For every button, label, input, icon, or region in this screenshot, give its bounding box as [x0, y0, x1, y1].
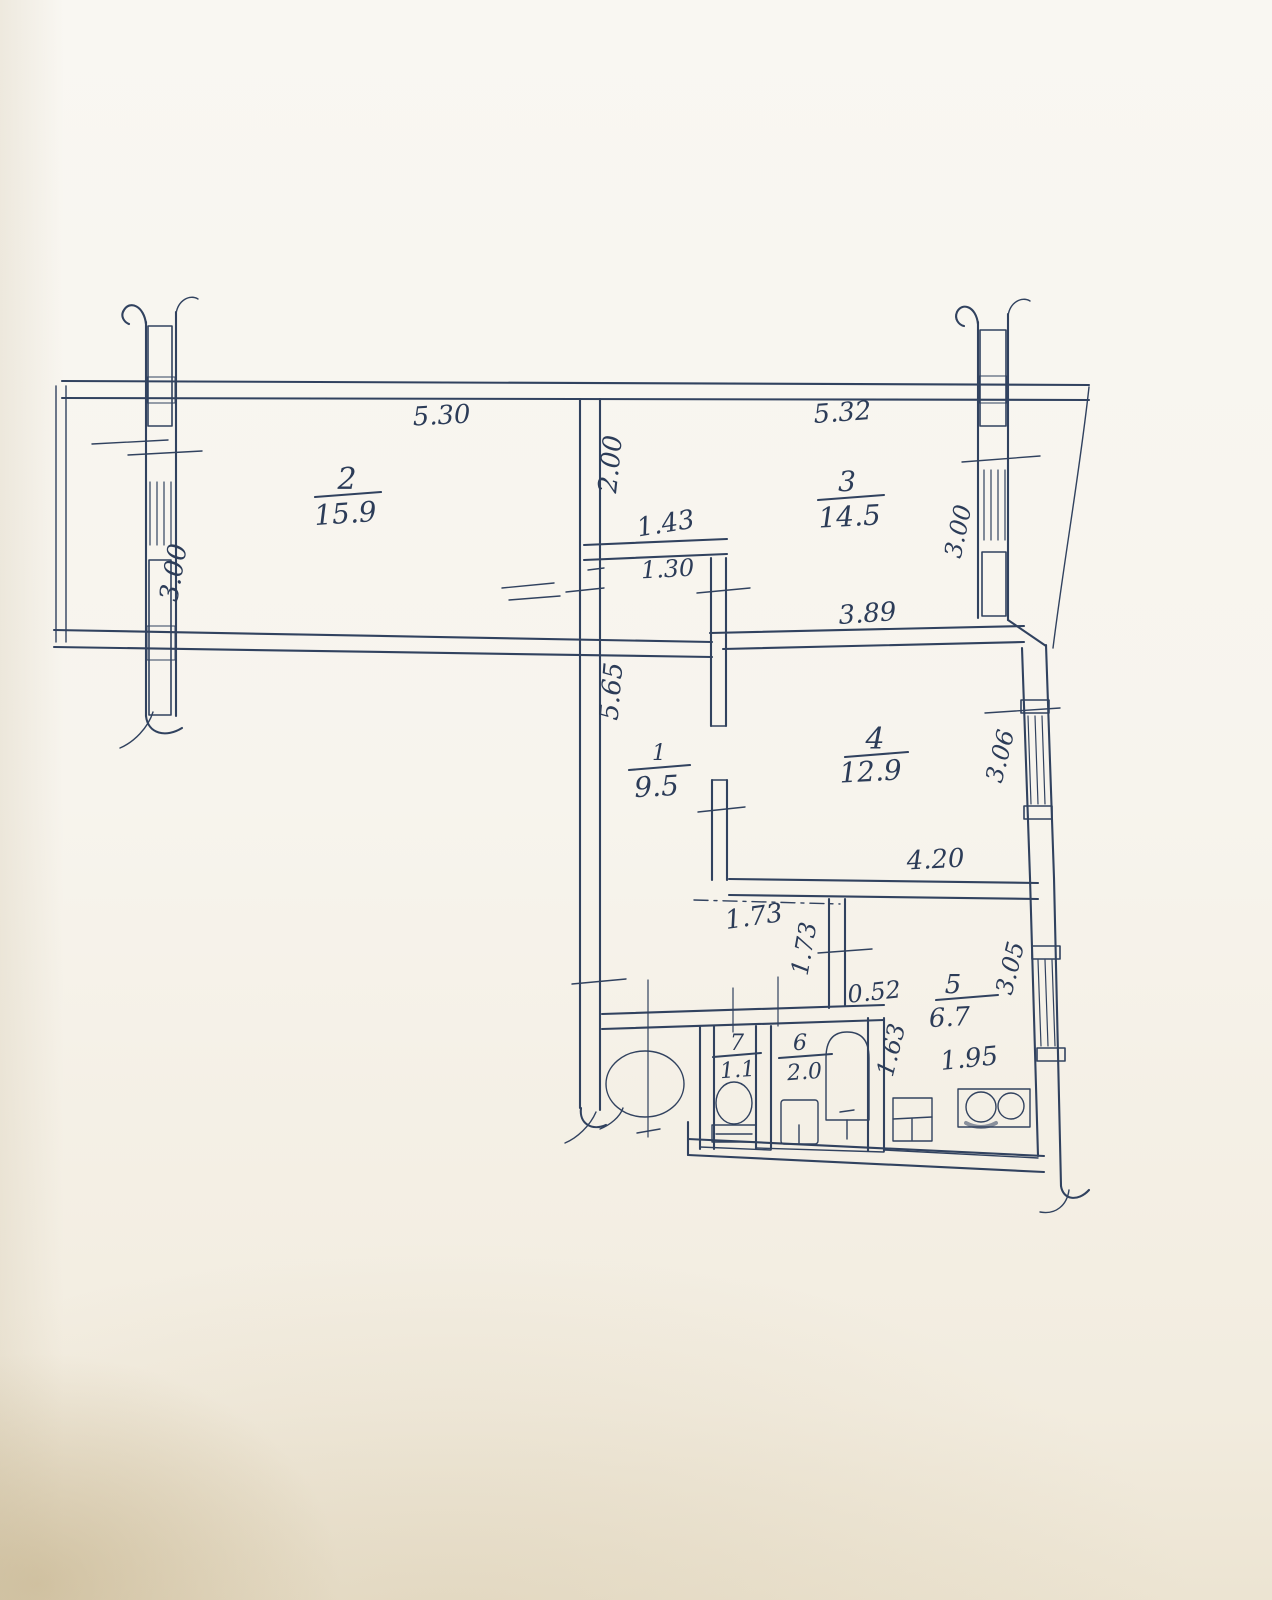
wall-top-inner [62, 398, 1089, 400]
right-outer-wall [985, 620, 1089, 1213]
balcony-diagonal-line [1053, 387, 1089, 648]
right-wall-bottom-hook [1061, 1186, 1089, 1198]
window-hatch-line [1042, 716, 1045, 804]
closet-left-tick [588, 568, 604, 570]
bathroom-floor-line [756, 1148, 884, 1152]
dim-kitchen-bottom-width: 1.95 [939, 1041, 1000, 1077]
closet-right-door-tick [697, 588, 750, 593]
closet-left-door-tick [566, 588, 604, 592]
right-pier-top-hook [956, 307, 978, 326]
bathroom-area: 2.0 [785, 1059, 823, 1086]
pier-top-flick [176, 297, 198, 314]
hall-number: 1 [652, 741, 666, 766]
bathtub-drain-dash [840, 1110, 854, 1112]
stove-blue-smudge [966, 1123, 996, 1127]
walls [54, 381, 1089, 1172]
dim-room2-top-width: 5.30 [412, 400, 471, 433]
corridor-top-wall-inner [602, 1020, 884, 1029]
window-hatch-line [1052, 960, 1055, 1046]
stove-burner-left [966, 1092, 996, 1122]
pier-sill-tick-1 [92, 440, 168, 444]
scanned-floor-plan-page: 5.30 2 15.9 3.00 5.32 3 14.5 2.00 1.43 1… [0, 0, 1272, 1600]
room3-area: 14.5 [818, 498, 882, 534]
window-hatch-line [1045, 960, 1048, 1046]
kitchen-window-cap-bottom [1037, 1048, 1065, 1061]
room2-door-tick-2 [509, 596, 560, 600]
pier-bottom-hook [146, 716, 182, 733]
wall-bottom-inner [688, 1155, 1044, 1172]
room3-number: 3 [838, 465, 856, 498]
room2-door-tick-1 [502, 583, 554, 588]
right-pier-top-flick [1008, 299, 1030, 316]
right-wall-room4-inner [1022, 648, 1030, 878]
dim-room3-top-width: 5.32 [813, 396, 873, 430]
wall-room2-bottom-inner [54, 647, 712, 657]
wall-room2-bottom-outer [54, 630, 712, 642]
wall-room4-bottom-outer [729, 879, 1038, 883]
kitchen-number: 5 [945, 970, 962, 1000]
dim-hall-bottom-width: 1.73 [723, 898, 785, 936]
dim-hall-length: 5.65 [595, 661, 630, 721]
wall-top-outer [62, 381, 1089, 385]
bathtub-icon [826, 1032, 869, 1120]
window-hatch-line [1028, 716, 1031, 804]
dim-kitchen-right-window: 3.05 [990, 939, 1030, 998]
dim-closet-width-top: 1.43 [635, 505, 697, 544]
window-hatch-line [1035, 716, 1038, 804]
bathroom-number: 6 [793, 1031, 807, 1056]
pier-sill-tick-2 [128, 451, 202, 455]
pier-top-hook [122, 305, 146, 324]
floor-plan-drawing: 5.30 2 15.9 3.00 5.32 3 14.5 2.00 1.43 1… [0, 0, 1272, 1600]
hall-area: 9.5 [633, 769, 679, 804]
right-pier-sill-tick [962, 456, 1040, 462]
room4-door-tick [698, 807, 745, 812]
right-wall-room4-outer [1046, 645, 1054, 878]
room2-area: 15.9 [313, 495, 377, 532]
right-pier-blue-top [980, 330, 1006, 426]
toilet-icon [716, 1082, 752, 1124]
dim-kitchen-inner-left: 1.63 [871, 1021, 911, 1080]
window-hatch-line [1038, 960, 1041, 1046]
room4-number: 4 [864, 722, 884, 757]
right-window-pier-top [956, 299, 1089, 648]
stove-icon [958, 1089, 1030, 1127]
dim-room2-left-window: 3.00 [154, 542, 194, 604]
wall-room3-bottom-inner [723, 642, 1024, 649]
dim-room3-left-depth: 2.00 [593, 434, 629, 496]
wc-number: 7 [730, 1031, 744, 1056]
dim-closet-width-inner: 1.30 [640, 554, 695, 585]
dim-room4-bottom-width: 4.20 [905, 844, 965, 877]
right-pier-blue-bottom [982, 552, 1006, 616]
room4-area: 12.9 [839, 753, 903, 789]
corridor-top-wall-outer [602, 1005, 884, 1014]
dim-room3-bottom-width: 3.89 [838, 597, 898, 631]
stove-burner-right [998, 1093, 1024, 1119]
pier-bottom-flick [120, 712, 153, 748]
dim-kitchen-left-wall: 1.73 [786, 920, 823, 977]
left-window-pier [92, 297, 202, 748]
kitchen-area: 6.7 [928, 1002, 971, 1034]
dim-kitchen-entry-gap: 0.52 [846, 975, 902, 1008]
pier-blue-top-segment [148, 326, 172, 426]
wc-area: 1.1 [719, 1057, 756, 1084]
room2-number: 2 [336, 462, 356, 497]
round-fixture-icon [606, 1051, 684, 1117]
dim-room4-right-window: 3.06 [980, 727, 1020, 786]
dim-room3-right-window: 3.00 [939, 502, 977, 560]
right-wall-kitchen-inner [1030, 878, 1038, 1156]
